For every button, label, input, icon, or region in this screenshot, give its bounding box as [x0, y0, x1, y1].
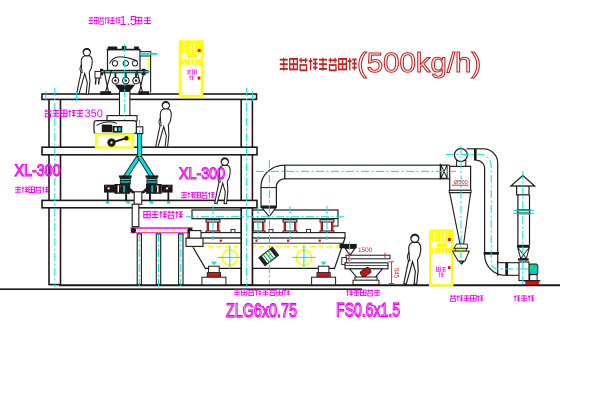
svg-text:350: 350 — [85, 108, 103, 120]
svg-text:ZLG6x0.75: ZLG6x0.75 — [226, 300, 297, 321]
svg-text:545: 545 — [393, 268, 399, 279]
svg-text:1500: 1500 — [358, 247, 373, 254]
svg-text:FS0.6x1.5: FS0.6x1.5 — [336, 299, 400, 321]
svg-text:XL-300: XL-300 — [179, 165, 225, 183]
svg-text:XL-300: XL-300 — [15, 162, 61, 180]
svg-text:(500kg/h): (500kg/h) — [357, 48, 481, 79]
svg-text:1.5: 1.5 — [120, 14, 137, 28]
